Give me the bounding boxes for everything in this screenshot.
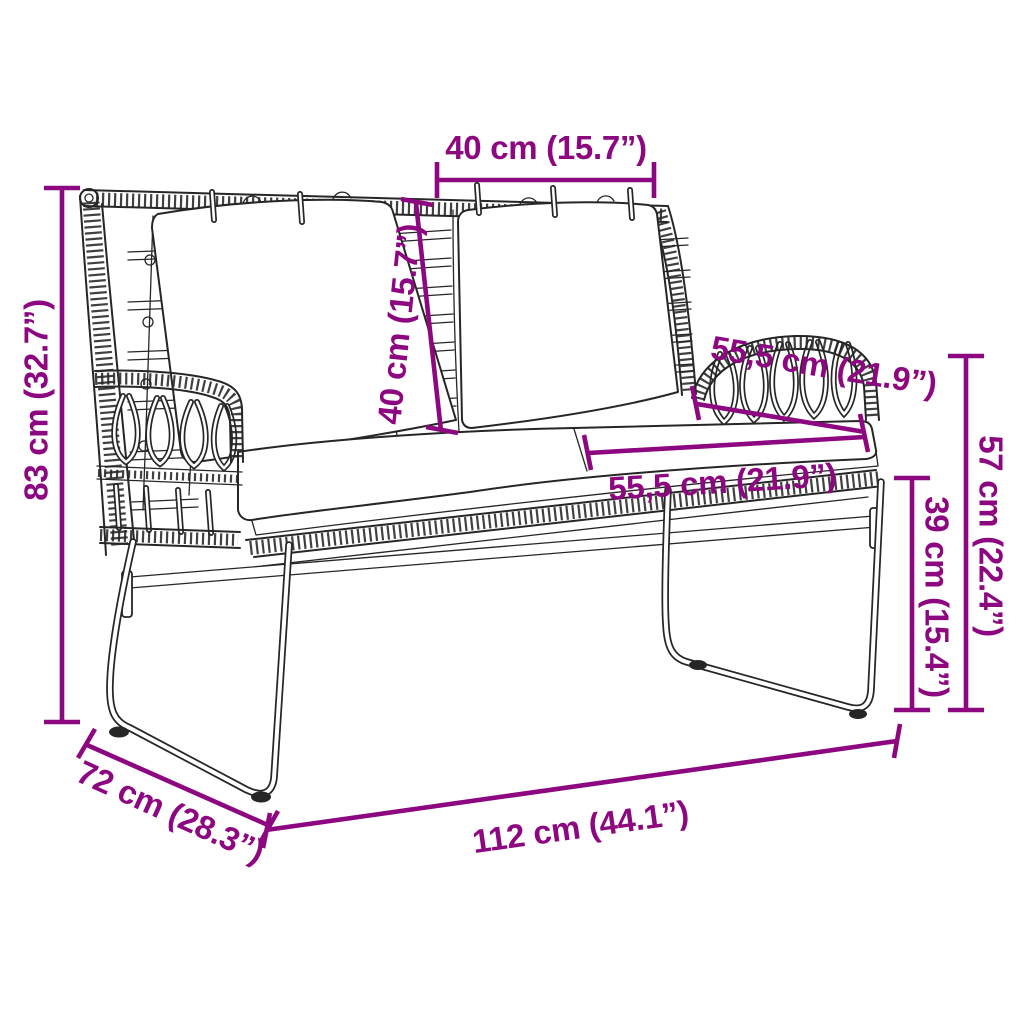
left-front-foot: [109, 727, 129, 738]
dimension-label: 40 cm (15.7”): [445, 129, 647, 166]
left-sled-leg: [109, 542, 289, 803]
dimension-line: [437, 162, 654, 198]
dimension-label: 112 cm (44.1”): [470, 793, 691, 860]
dim-overall-height: 83 cm (32.7”): [18, 188, 80, 722]
diagram-canvas: 83 cm (32.7”) 40 cm (15.7”) 40 cm (15.7”…: [0, 0, 1024, 1024]
dim-backrest-cushion-width: 40 cm (15.7”): [437, 129, 654, 198]
bench-dimension-diagram: 83 cm (32.7”) 40 cm (15.7”) 40 cm (15.7”…: [0, 0, 1024, 1024]
dimension-label: 39 cm (15.4”): [918, 496, 955, 698]
back-cushion-right: [458, 202, 678, 428]
right-front-foot: [689, 660, 707, 670]
dimension-label: 57 cm (22.4”): [972, 435, 1009, 637]
dim-armrest-height: 57 cm (22.4”): [948, 356, 1009, 710]
dim-seat-height: 39 cm (15.4”): [894, 478, 955, 710]
dimension-label: 83 cm (32.7”): [18, 299, 55, 501]
dim-overall-width: 112 cm (44.1”): [263, 724, 900, 860]
cross-stretcher: [122, 508, 879, 617]
right-rear-foot: [849, 709, 867, 719]
left-rear-foot: [251, 792, 271, 803]
